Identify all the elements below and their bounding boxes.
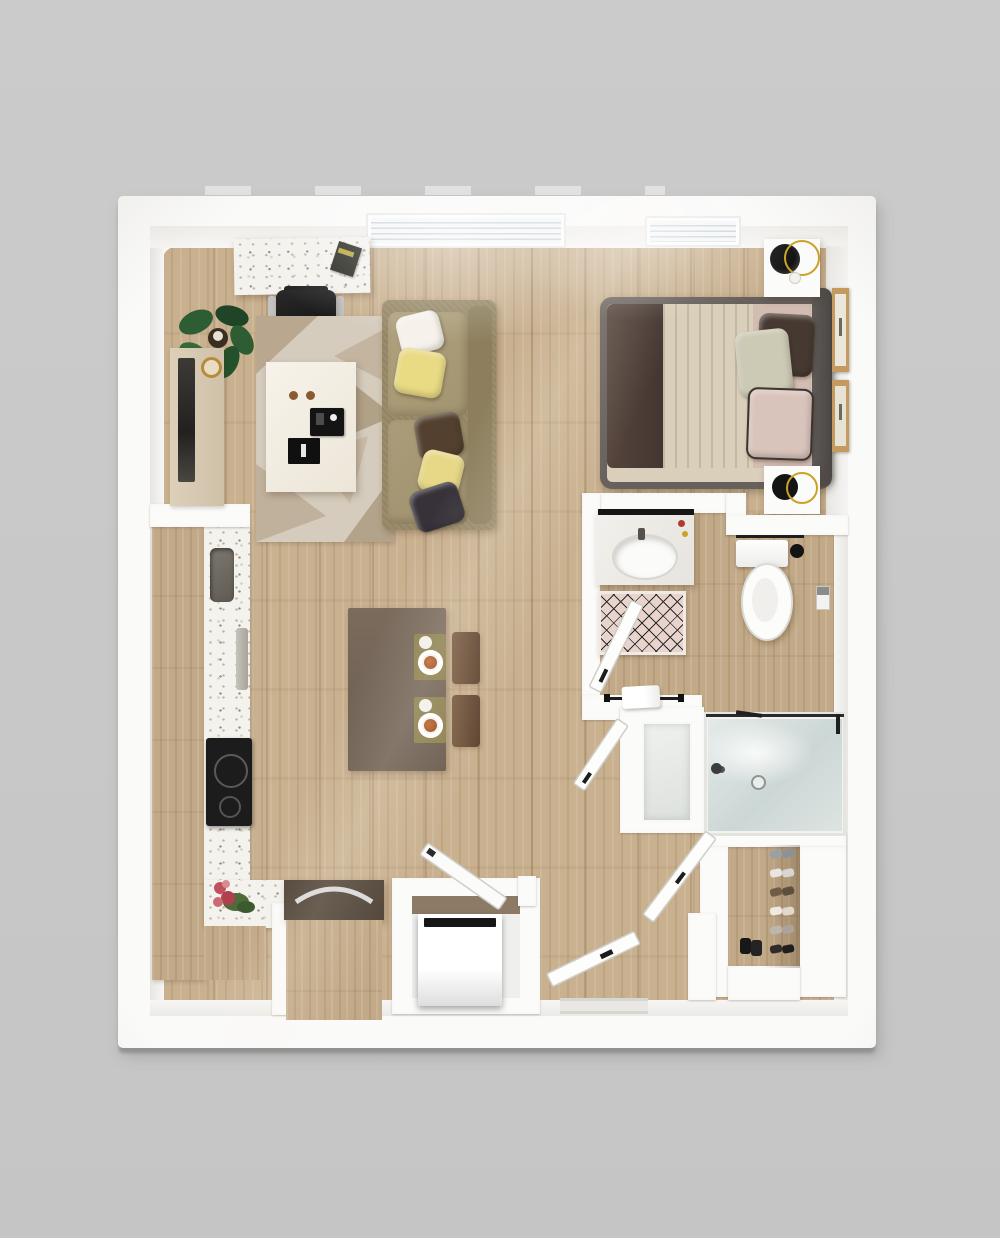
laundry-niche-door [420, 843, 507, 910]
bathroom-door [589, 600, 643, 692]
floor-plan-scene [0, 0, 1000, 1238]
linen-door [574, 719, 628, 791]
door-leaves [0, 0, 1000, 1238]
entry-door [547, 931, 640, 986]
closet-door [643, 831, 716, 922]
